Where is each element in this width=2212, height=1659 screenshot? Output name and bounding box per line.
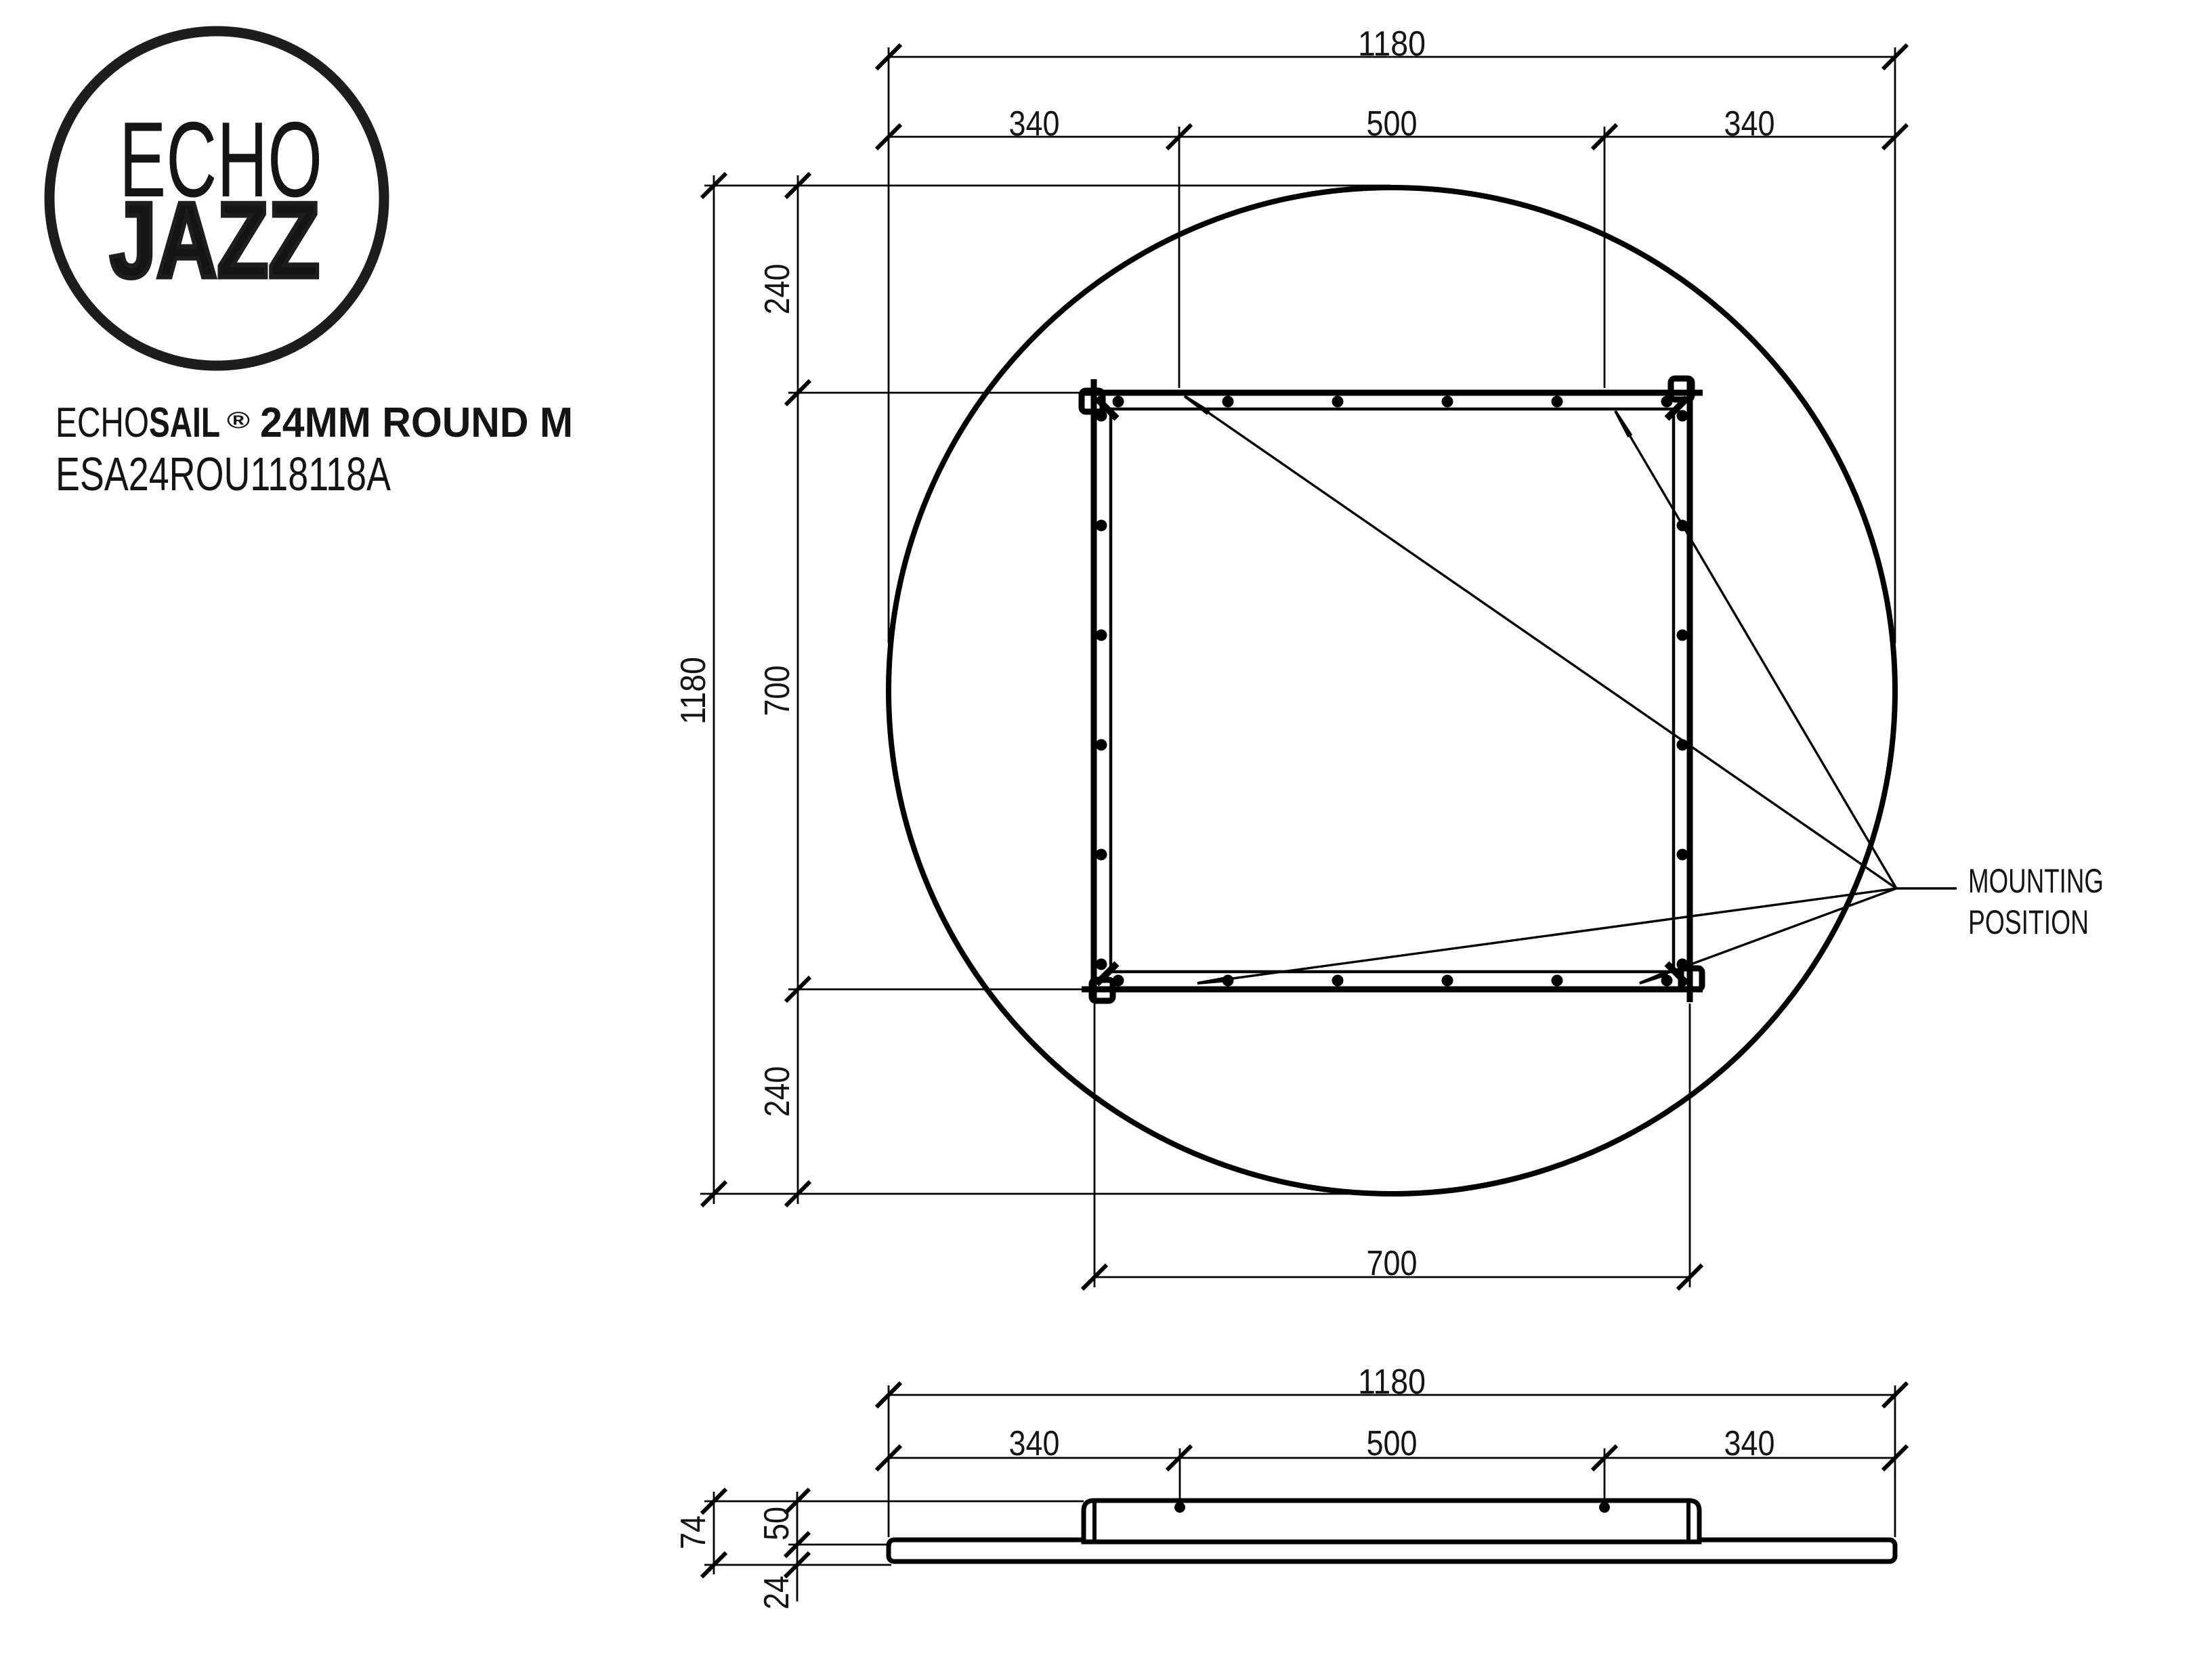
svg-text:POSITION: POSITION bbox=[1968, 903, 2089, 941]
svg-text:50: 50 bbox=[757, 1507, 796, 1540]
svg-text:JAZZ: JAZZ bbox=[110, 181, 320, 300]
svg-text:ECHOSAIL®24MM ROUND M: ECHOSAIL®24MM ROUND M bbox=[56, 400, 573, 446]
svg-text:MOUNTING: MOUNTING bbox=[1968, 862, 2104, 900]
svg-text:500: 500 bbox=[1367, 1424, 1418, 1463]
svg-text:700: 700 bbox=[1367, 1244, 1418, 1283]
svg-text:1180: 1180 bbox=[1358, 24, 1426, 64]
svg-text:24: 24 bbox=[757, 1576, 796, 1610]
svg-text:340: 340 bbox=[1009, 104, 1060, 144]
svg-text:340: 340 bbox=[1724, 104, 1775, 144]
svg-text:1180: 1180 bbox=[674, 657, 713, 725]
svg-text:700: 700 bbox=[758, 666, 797, 716]
svg-text:ESA24ROU118118A: ESA24ROU118118A bbox=[56, 448, 391, 500]
svg-text:340: 340 bbox=[1724, 1424, 1775, 1463]
svg-text:500: 500 bbox=[1367, 104, 1418, 144]
svg-text:240: 240 bbox=[758, 1066, 797, 1117]
svg-text:74: 74 bbox=[674, 1515, 713, 1549]
svg-text:1180: 1180 bbox=[1358, 1362, 1426, 1402]
svg-text:340: 340 bbox=[1009, 1424, 1060, 1463]
svg-text:240: 240 bbox=[758, 264, 797, 315]
